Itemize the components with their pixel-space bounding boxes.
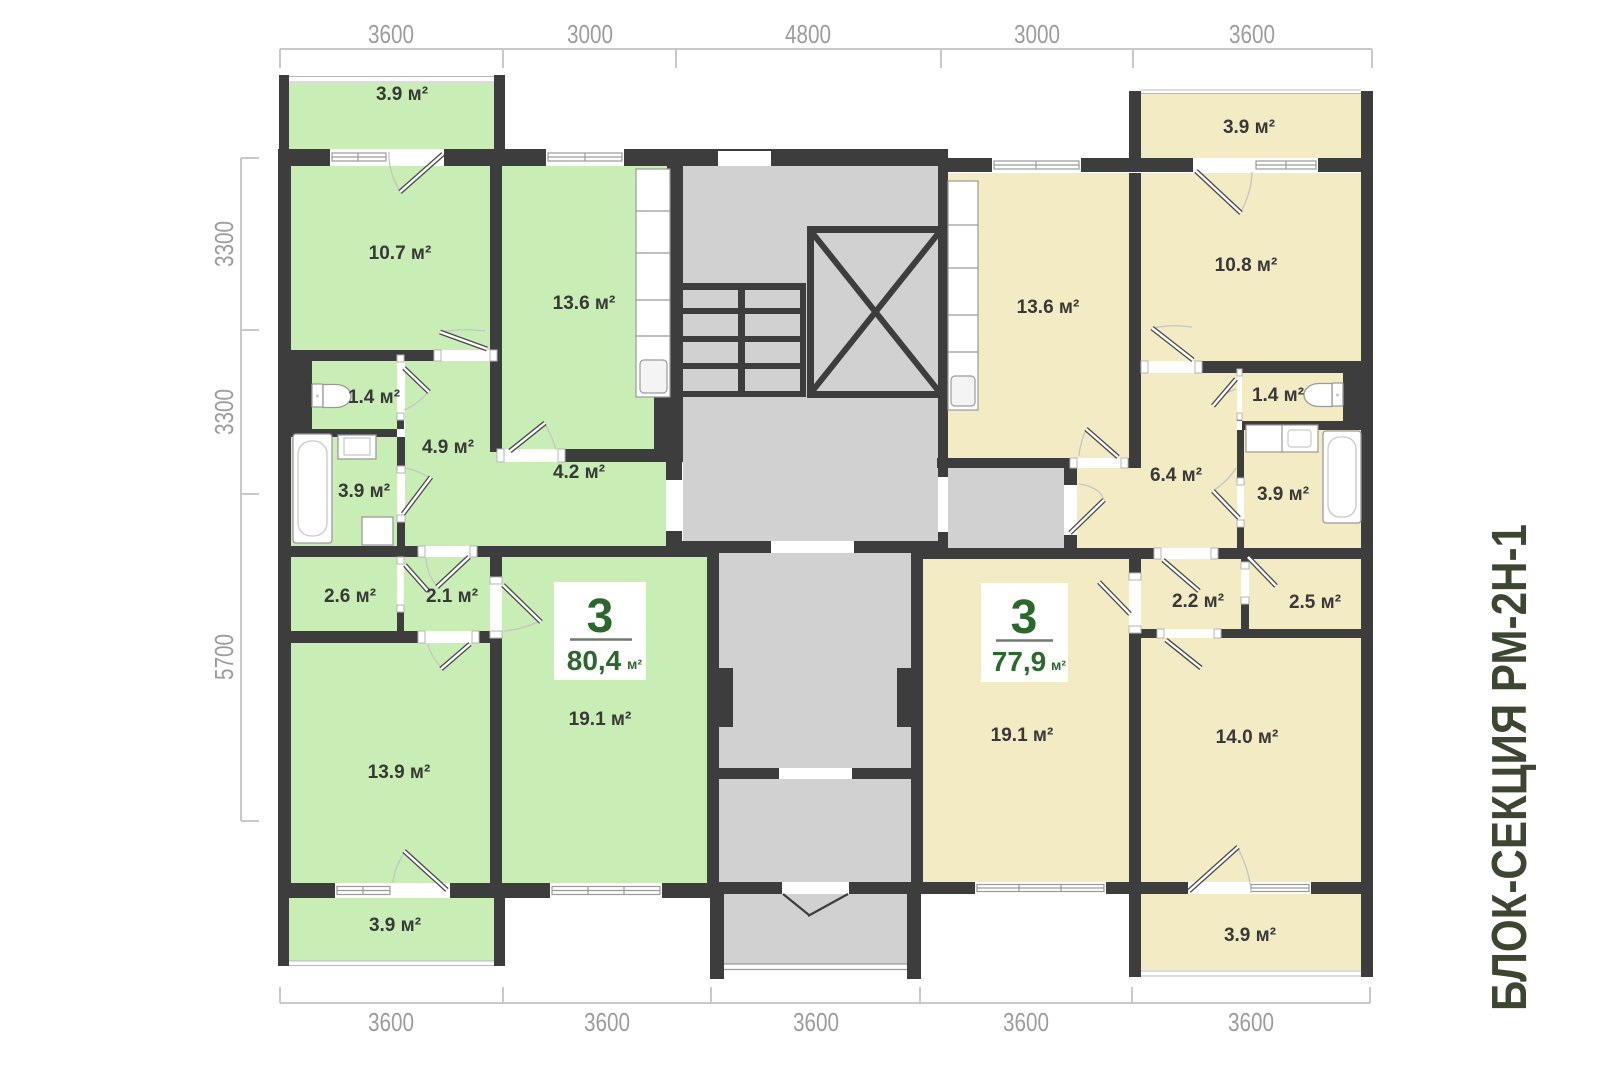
- svg-text:77,9: 77,9: [992, 646, 1047, 677]
- svg-text:3600: 3600: [1003, 1007, 1049, 1037]
- svg-text:2.1 м²: 2.1 м²: [426, 586, 478, 607]
- svg-text:3.9 м²: 3.9 м²: [338, 481, 390, 502]
- svg-text:3600: 3600: [368, 19, 414, 49]
- svg-text:6.4 м²: 6.4 м²: [1150, 465, 1202, 486]
- svg-text:3600: 3600: [1229, 19, 1275, 49]
- svg-text:м²: м²: [627, 656, 642, 672]
- svg-text:3600: 3600: [1228, 1007, 1274, 1037]
- svg-text:3300: 3300: [209, 221, 239, 267]
- svg-text:3: 3: [1011, 591, 1038, 644]
- svg-text:19.1 м²: 19.1 м²: [569, 709, 632, 730]
- svg-text:4800: 4800: [785, 19, 831, 49]
- svg-text:3.9 м²: 3.9 м²: [1224, 925, 1276, 946]
- svg-text:14.0 м²: 14.0 м²: [1216, 727, 1279, 748]
- svg-text:4.9 м²: 4.9 м²: [422, 437, 474, 458]
- svg-text:1.4 м²: 1.4 м²: [1252, 385, 1304, 406]
- svg-text:2.2 м²: 2.2 м²: [1172, 591, 1224, 612]
- svg-text:3300: 3300: [209, 389, 239, 435]
- svg-text:2.5 м²: 2.5 м²: [1289, 592, 1341, 613]
- svg-text:80,4: 80,4: [567, 645, 622, 676]
- svg-text:3000: 3000: [1014, 19, 1060, 49]
- svg-text:4.2 м²: 4.2 м²: [553, 462, 605, 483]
- svg-text:3.9 м²: 3.9 м²: [376, 84, 428, 105]
- svg-text:13.6 м²: 13.6 м²: [1017, 297, 1080, 318]
- svg-text:2.6 м²: 2.6 м²: [324, 586, 376, 607]
- svg-text:3.9 м²: 3.9 м²: [1223, 117, 1275, 138]
- svg-text:3600: 3600: [368, 1007, 414, 1037]
- svg-text:10.7 м²: 10.7 м²: [369, 243, 432, 264]
- svg-text:БЛОК-СЕКЦИЯ РМ-2Н-1: БЛОК-СЕКЦИЯ РМ-2Н-1: [1483, 524, 1537, 1011]
- svg-text:10.8 м²: 10.8 м²: [1215, 255, 1278, 276]
- svg-text:13.9 м²: 13.9 м²: [368, 762, 431, 783]
- svg-text:19.1 м²: 19.1 м²: [991, 725, 1054, 746]
- svg-text:1.4 м²: 1.4 м²: [348, 387, 400, 408]
- svg-text:13.6 м²: 13.6 м²: [553, 293, 616, 314]
- svg-text:3600: 3600: [584, 1007, 630, 1037]
- svg-text:3: 3: [587, 590, 614, 643]
- svg-text:3.9 м²: 3.9 м²: [369, 915, 421, 936]
- svg-text:3.9 м²: 3.9 м²: [1257, 484, 1309, 505]
- svg-text:5700: 5700: [209, 634, 239, 680]
- svg-text:3600: 3600: [793, 1007, 839, 1037]
- svg-text:3000: 3000: [567, 19, 613, 49]
- svg-text:м²: м²: [1051, 657, 1066, 673]
